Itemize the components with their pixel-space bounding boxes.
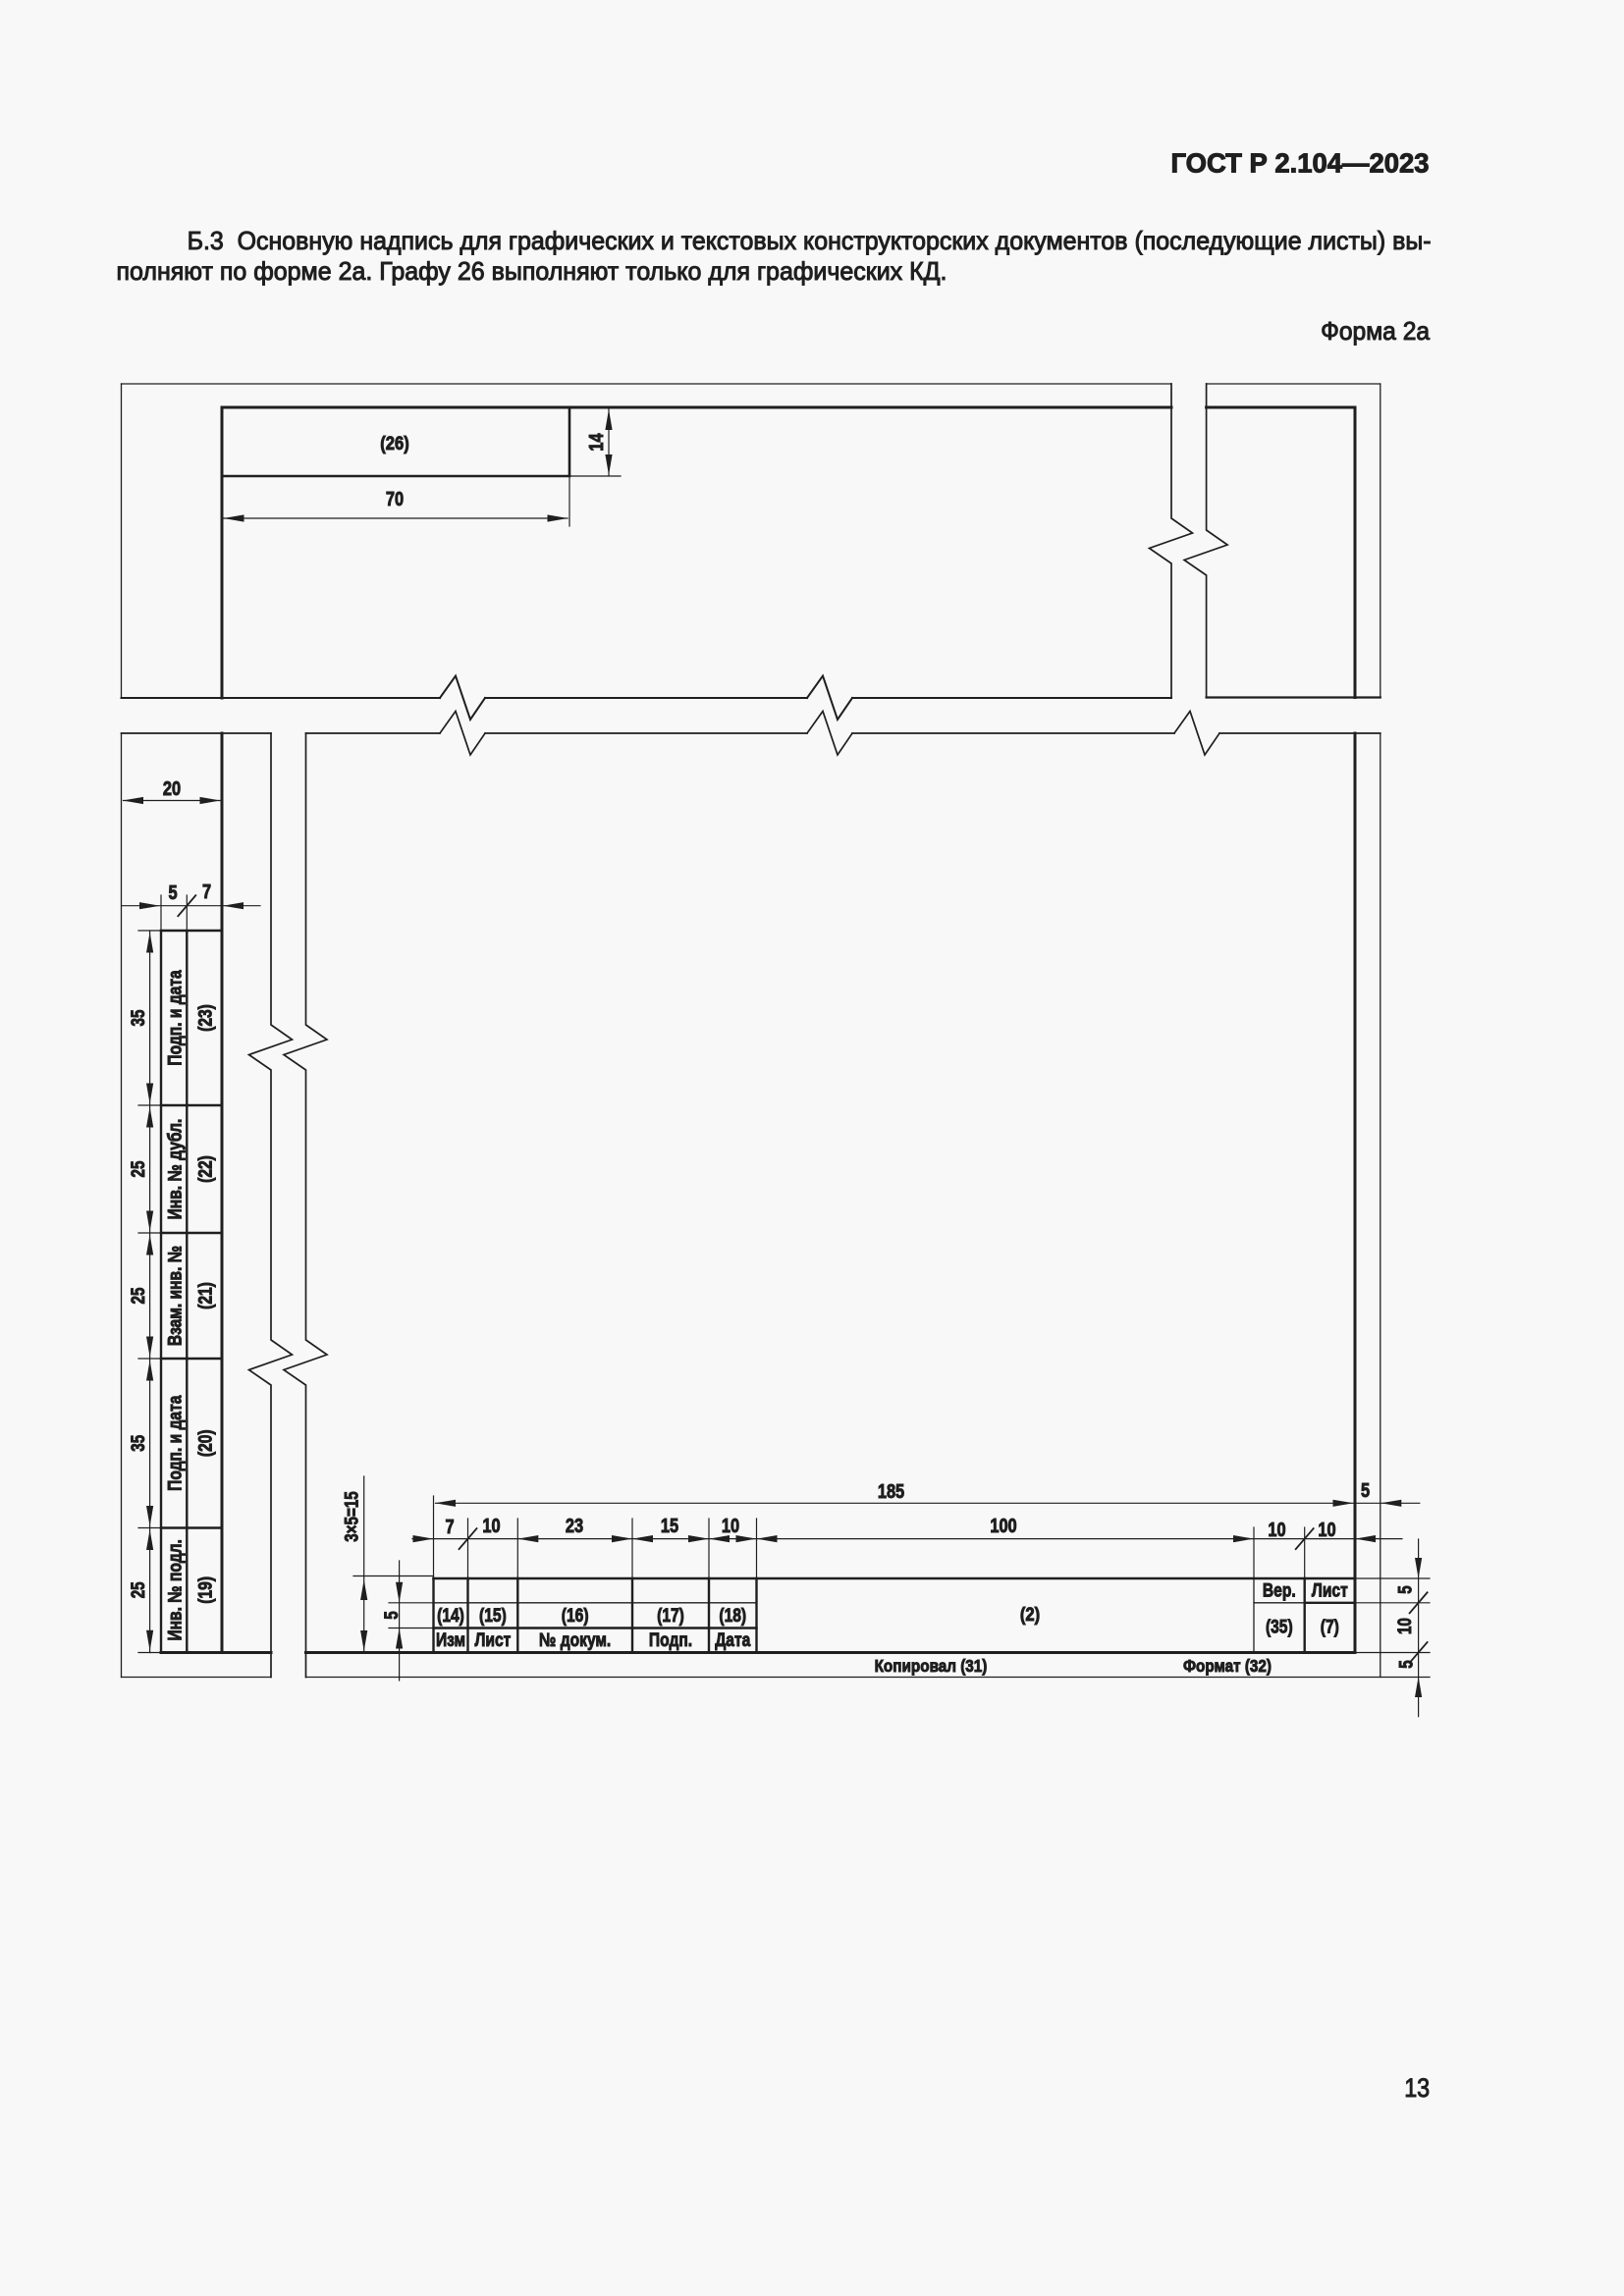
svg-text:25: 25 bbox=[127, 1160, 148, 1177]
svg-text:5: 5 bbox=[1395, 1660, 1417, 1669]
svg-text:Вер.: Вер. bbox=[1263, 1579, 1296, 1601]
svg-text:Дата: Дата bbox=[715, 1629, 750, 1650]
svg-text:25: 25 bbox=[127, 1581, 148, 1598]
svg-text:Форма 2а: Форма 2а bbox=[1321, 316, 1431, 346]
svg-text:Инв. № подл.: Инв. № подл. bbox=[164, 1539, 186, 1640]
svg-text:Взам. инв. №: Взам. инв. № bbox=[164, 1246, 186, 1346]
svg-text:Инв. № дубл.: Инв. № дубл. bbox=[164, 1119, 186, 1220]
svg-text:5: 5 bbox=[168, 881, 177, 903]
svg-text:10: 10 bbox=[1318, 1518, 1335, 1540]
svg-text:(35): (35) bbox=[1266, 1616, 1293, 1637]
svg-text:185: 185 bbox=[878, 1479, 904, 1502]
svg-text:Лист: Лист bbox=[1312, 1579, 1348, 1601]
svg-text:10: 10 bbox=[482, 1514, 500, 1536]
svg-text:(18): (18) bbox=[719, 1604, 746, 1626]
svg-text:Лист: Лист bbox=[474, 1629, 511, 1650]
svg-text:14: 14 bbox=[584, 433, 607, 452]
svg-text:70: 70 bbox=[386, 487, 404, 509]
svg-text:3×5=15: 3×5=15 bbox=[341, 1491, 362, 1542]
svg-text:Подп.: Подп. bbox=[649, 1629, 692, 1650]
svg-text:15: 15 bbox=[661, 1514, 678, 1536]
svg-text:10: 10 bbox=[722, 1514, 739, 1536]
svg-text:10: 10 bbox=[1268, 1518, 1285, 1540]
svg-text:Подп. и дата: Подп. и дата bbox=[164, 970, 186, 1065]
svg-text:100: 100 bbox=[990, 1514, 1016, 1536]
svg-text:7: 7 bbox=[202, 880, 211, 902]
svg-text:10: 10 bbox=[1393, 1618, 1415, 1634]
svg-text:(20): (20) bbox=[194, 1429, 216, 1457]
svg-text:5: 5 bbox=[1394, 1585, 1416, 1594]
svg-text:5: 5 bbox=[1361, 1478, 1370, 1501]
svg-text:(26): (26) bbox=[380, 433, 408, 454]
svg-text:(16): (16) bbox=[562, 1604, 589, 1626]
svg-text:7: 7 bbox=[445, 1515, 454, 1537]
svg-text:35: 35 bbox=[127, 1434, 148, 1451]
svg-text:(14): (14) bbox=[437, 1604, 464, 1626]
svg-text:Б.3 Основную надпись для граф: Б.3 Основную надпись для графических и т… bbox=[188, 226, 1432, 255]
svg-text:Изм: Изм bbox=[436, 1629, 465, 1650]
svg-text:35: 35 bbox=[127, 1009, 148, 1026]
svg-text:(17): (17) bbox=[657, 1604, 684, 1626]
svg-text:Формат (32): Формат (32) bbox=[1183, 1656, 1272, 1676]
svg-text:полняют по форме 2а. Графу 26: полняют по форме 2а. Графу 26 выполняют … bbox=[117, 256, 947, 286]
svg-text:20: 20 bbox=[163, 776, 181, 799]
svg-text:(19): (19) bbox=[194, 1576, 216, 1604]
svg-text:(7): (7) bbox=[1321, 1616, 1339, 1637]
svg-text:25: 25 bbox=[127, 1287, 148, 1304]
svg-text:Копировал (31): Копировал (31) bbox=[875, 1656, 988, 1676]
svg-text:Подп. и дата: Подп. и дата bbox=[164, 1395, 186, 1490]
svg-text:ГОСТ Р 2.104—2023: ГОСТ Р 2.104—2023 bbox=[1171, 148, 1430, 179]
svg-text:(21): (21) bbox=[194, 1282, 216, 1309]
svg-text:(23): (23) bbox=[194, 1004, 216, 1032]
svg-text:5: 5 bbox=[380, 1611, 402, 1620]
svg-text:13: 13 bbox=[1404, 2073, 1430, 2103]
svg-text:(15): (15) bbox=[479, 1604, 507, 1626]
svg-text:23: 23 bbox=[566, 1514, 583, 1536]
svg-text:№ докум.: № докум. bbox=[539, 1629, 611, 1650]
svg-text:(2): (2) bbox=[1020, 1604, 1040, 1626]
svg-text:(22): (22) bbox=[194, 1155, 216, 1183]
